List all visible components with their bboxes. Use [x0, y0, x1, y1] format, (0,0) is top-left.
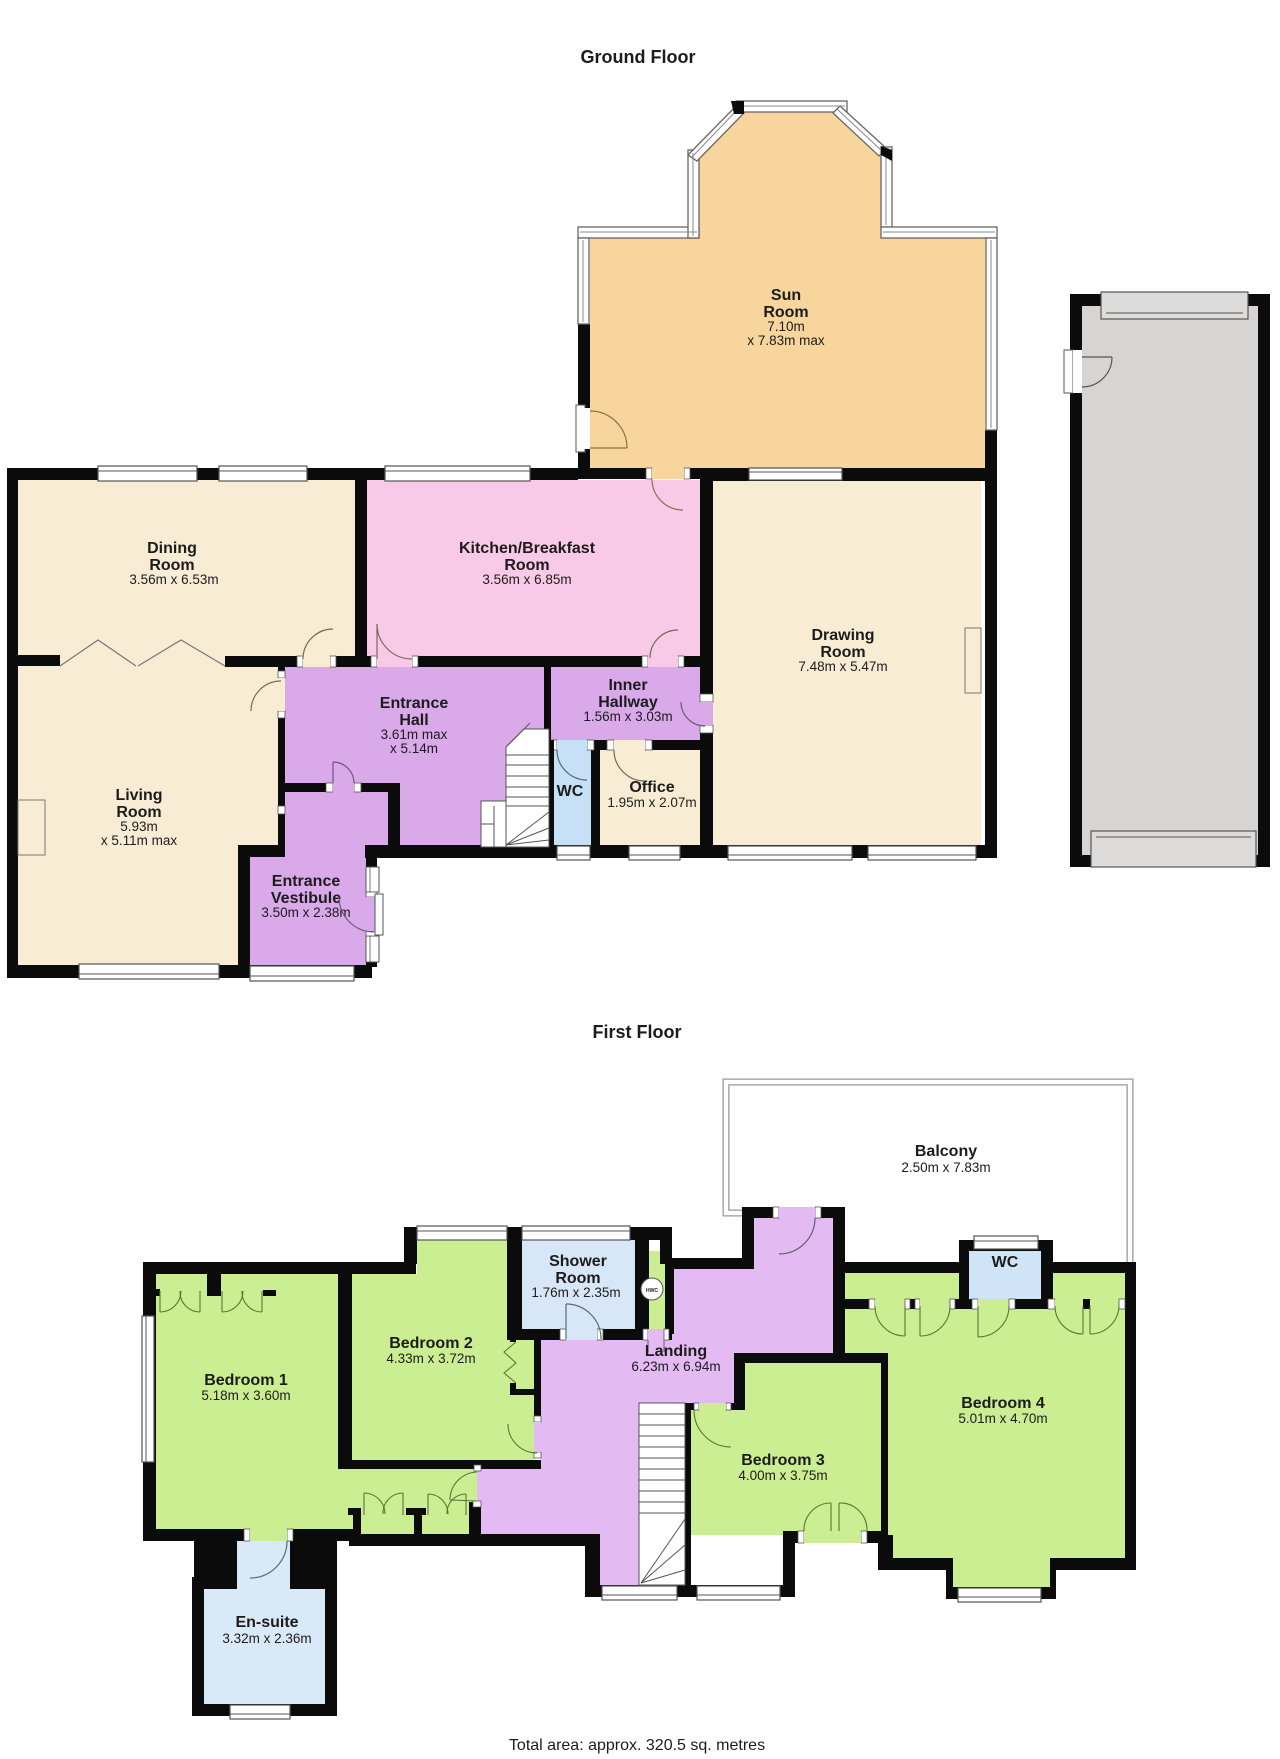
- svg-text:WC: WC: [992, 1254, 1019, 1271]
- svg-text:3.56m x 6.85m: 3.56m x 6.85m: [482, 572, 571, 587]
- svg-text:4.00m x 3.75m: 4.00m x 3.75m: [738, 1468, 827, 1483]
- svg-text:5.93m: 5.93m: [120, 819, 158, 834]
- svg-text:First Floor: First Floor: [593, 1022, 682, 1042]
- svg-text:Sun: Sun: [771, 287, 801, 304]
- svg-text:Balcony: Balcony: [915, 1143, 977, 1160]
- svg-text:En-suite: En-suite: [235, 1614, 298, 1631]
- svg-text:Entrance: Entrance: [380, 695, 449, 712]
- svg-text:Total area: approx. 320.5 sq.: Total area: approx. 320.5 sq. metres: [509, 1737, 765, 1754]
- svg-text:x 5.14m: x 5.14m: [390, 741, 438, 756]
- svg-text:1.56m x 3.03m: 1.56m x 3.03m: [583, 709, 672, 724]
- svg-text:x 7.83m max: x 7.83m max: [747, 333, 825, 348]
- svg-text:WC: WC: [557, 783, 584, 800]
- svg-text:Bedroom 1: Bedroom 1: [204, 1372, 288, 1389]
- svg-text:3.32m x 2.36m: 3.32m x 2.36m: [222, 1631, 311, 1646]
- svg-text:Ground Floor: Ground Floor: [581, 47, 696, 67]
- svg-text:Kitchen/Breakfast: Kitchen/Breakfast: [459, 540, 596, 557]
- svg-text:HWC: HWC: [646, 1288, 658, 1294]
- svg-text:Bedroom 2: Bedroom 2: [389, 1335, 473, 1352]
- svg-text:Drawing: Drawing: [811, 627, 874, 644]
- svg-text:Office: Office: [629, 779, 674, 796]
- svg-text:Shower: Shower: [549, 1253, 607, 1270]
- svg-text:Bedroom 3: Bedroom 3: [741, 1452, 825, 1469]
- svg-text:Landing: Landing: [645, 1343, 707, 1360]
- svg-text:3.61m max: 3.61m max: [381, 727, 448, 742]
- svg-text:Dining: Dining: [147, 540, 197, 557]
- svg-text:7.10m: 7.10m: [767, 319, 805, 334]
- svg-text:3.56m x 6.53m: 3.56m x 6.53m: [129, 572, 218, 587]
- svg-text:3.50m x 2.38m: 3.50m x 2.38m: [261, 905, 350, 920]
- svg-text:7.48m x 5.47m: 7.48m x 5.47m: [798, 659, 887, 674]
- svg-text:Bedroom 4: Bedroom 4: [961, 1395, 1045, 1412]
- svg-text:6.23m x 6.94m: 6.23m x 6.94m: [631, 1359, 720, 1374]
- svg-text:5.18m x 3.60m: 5.18m x 3.60m: [201, 1388, 290, 1403]
- svg-text:4.33m x 3.72m: 4.33m x 3.72m: [386, 1351, 475, 1366]
- svg-text:2.50m x 7.83m: 2.50m x 7.83m: [901, 1160, 990, 1175]
- svg-text:Inner: Inner: [608, 677, 647, 694]
- svg-text:Living: Living: [115, 787, 162, 804]
- svg-text:Entrance: Entrance: [272, 873, 341, 890]
- svg-text:x 5.11m max: x 5.11m max: [101, 833, 178, 848]
- svg-text:5.01m x 4.70m: 5.01m x 4.70m: [958, 1411, 1047, 1426]
- svg-text:1.76m x 2.35m: 1.76m x 2.35m: [531, 1285, 620, 1300]
- svg-text:1.95m x 2.07m: 1.95m x 2.07m: [607, 795, 696, 810]
